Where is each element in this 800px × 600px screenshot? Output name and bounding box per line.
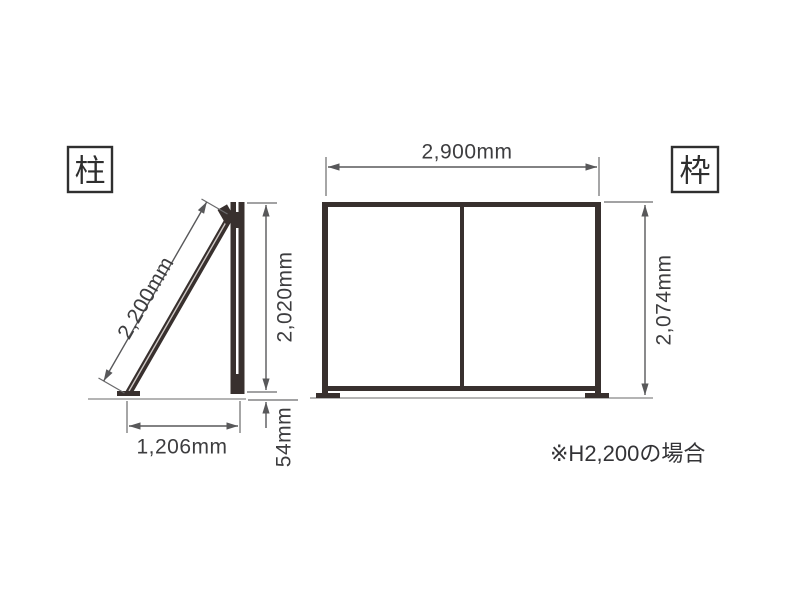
dimension-diagram: 柱 2,200mm 2,020mm <box>0 0 800 600</box>
pillar-label: 柱 <box>75 154 106 189</box>
dim-frame-width: 2,900mm <box>326 141 599 197</box>
height-note: ※H2,200の場合 <box>550 441 705 466</box>
dim-post-height: 2,020mm <box>247 203 297 392</box>
frame-foot-right <box>585 393 609 398</box>
frame-foot-left <box>316 393 340 398</box>
frame-diagram: 枠 2,900mm 2,074mm ※H2,200の場合 <box>310 141 718 467</box>
pillar-post <box>231 202 245 394</box>
technical-drawing-page: 柱 2,200mm 2,020mm <box>0 0 800 600</box>
dim-base-width: 1,206mm <box>127 401 240 459</box>
dim-ground-gap: 54mm <box>248 400 298 467</box>
frame-left-post <box>322 202 328 397</box>
dim-frame-height: 2,074mm <box>604 202 676 395</box>
brace-foot <box>117 391 140 396</box>
dim-brace-length: 2,200mm <box>99 199 228 393</box>
frame-width-value: 2,900mm <box>421 141 512 164</box>
ground-gap-value: 54mm <box>273 407 296 467</box>
frame-height-value: 2,074mm <box>653 254 676 345</box>
frame-outline <box>316 202 609 398</box>
post-height-value: 2,020mm <box>274 251 297 342</box>
frame-right-post <box>595 202 601 397</box>
pillar-diagram: 柱 2,200mm 2,020mm <box>68 147 298 467</box>
base-width-value: 1,206mm <box>136 436 227 459</box>
frame-label: 枠 <box>680 154 711 189</box>
frame-top-rail <box>322 202 601 207</box>
frame-divider <box>460 207 464 387</box>
